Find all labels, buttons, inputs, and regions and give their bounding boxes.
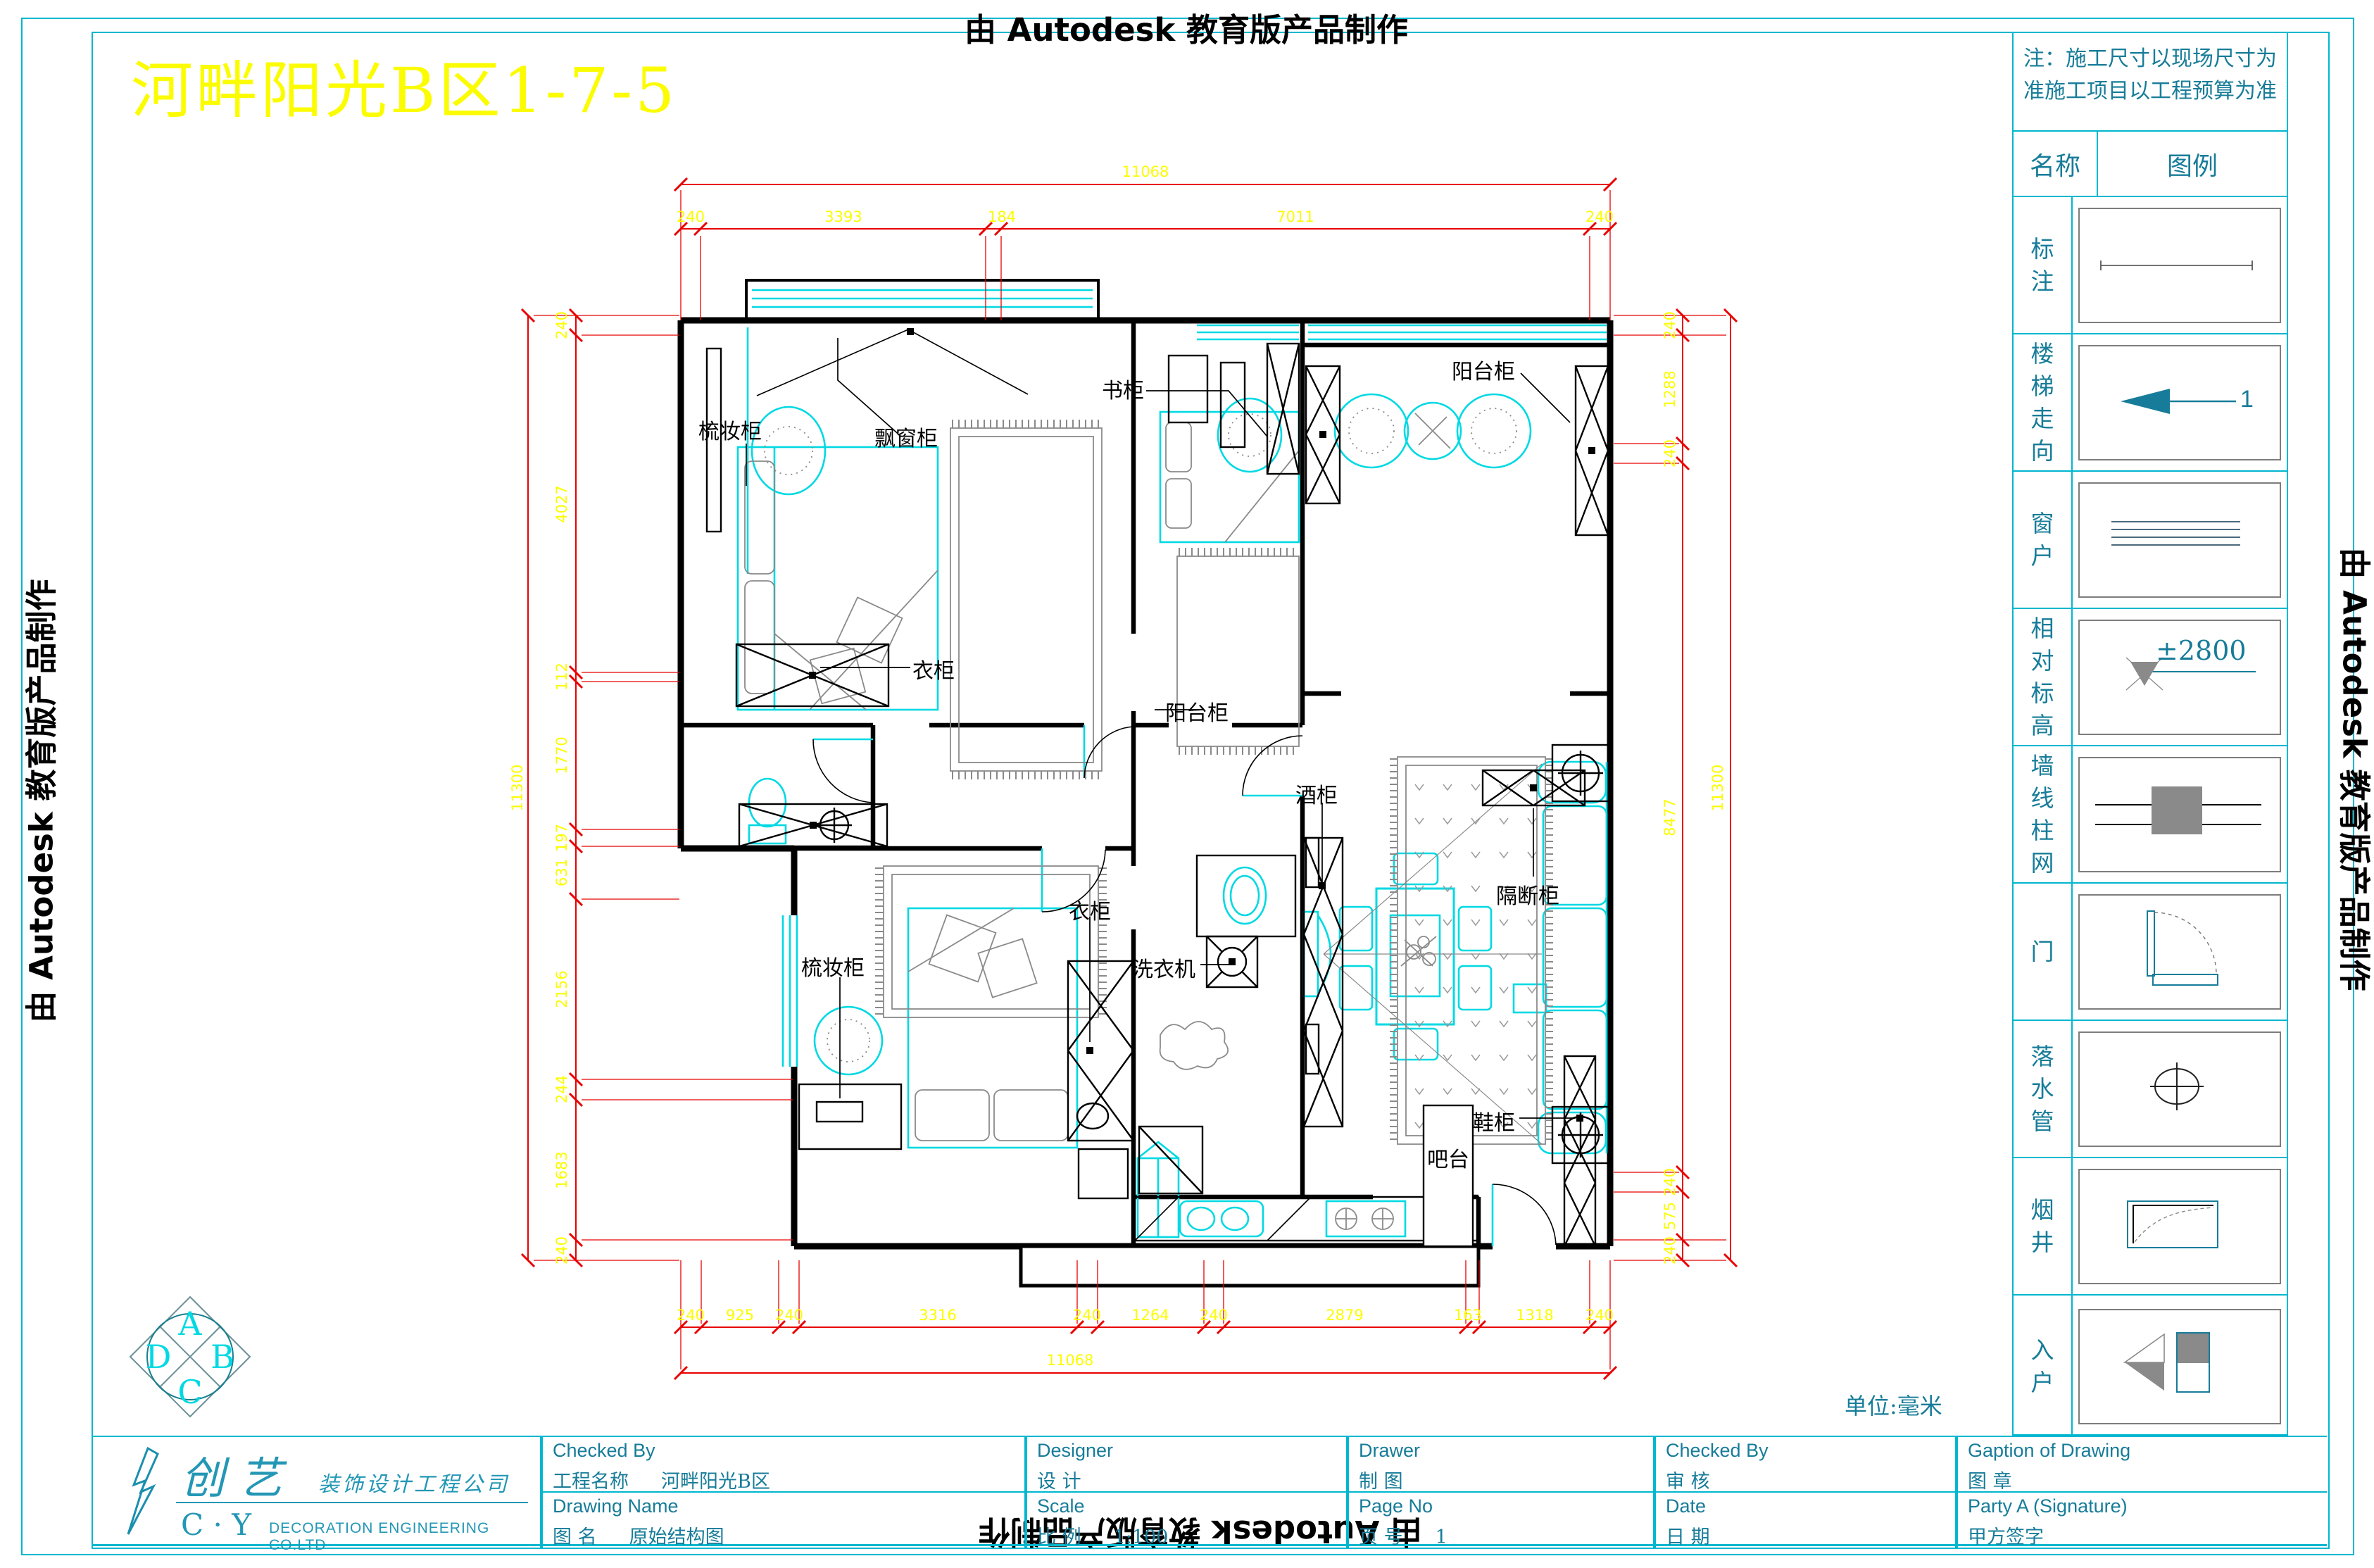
svg-text:D: D	[146, 1338, 172, 1376]
cell-caption: Gaption of Drawing 图 章	[1957, 1437, 2325, 1491]
cell-project-name: Checked By 工程名称河畔阳光B区	[541, 1437, 1023, 1491]
cad-sheet: 由 Autodesk 教育版产品制作 由 Autodesk 教育版产品制作 由 …	[0, 0, 2374, 1568]
stair-arrow-symbol: 1	[2078, 345, 2281, 460]
dim-left-8: 1683	[553, 1139, 570, 1202]
dim-left-1: 4027	[553, 472, 570, 536]
label-bar-counter: 吧台	[1427, 1142, 1469, 1173]
label-wardrobe-2: 衣柜	[1069, 894, 1111, 925]
legend-row-door: 门	[2014, 884, 2287, 1021]
dim-bot-10: 240	[1568, 1307, 1631, 1324]
drain-pipe-symbol	[2078, 1031, 2281, 1147]
label-dresser-2: 梳妆柜	[801, 951, 865, 981]
legend-row-drain-pipe: 落水管	[2014, 1021, 2287, 1158]
dimension-lines	[522, 178, 1737, 1379]
label-balcony-cab-2: 阳台柜	[1165, 696, 1229, 727]
cell-scale: Scale 比 例1:100	[1026, 1493, 1345, 1548]
svg-text:C: C	[177, 1373, 202, 1411]
window-symbol	[2078, 482, 2281, 598]
dimension-symbol	[2078, 208, 2281, 323]
dim-bot-6: 240	[1182, 1307, 1245, 1324]
dim-top-4: 240	[1568, 208, 1631, 225]
dim-top-2: 184	[970, 208, 1034, 225]
dim-right-2: 240	[1662, 422, 1678, 485]
dim-bot-7: 2879	[1313, 1307, 1376, 1324]
legend-header: 名称 图例	[2014, 132, 2287, 197]
stair-number: 1	[2240, 386, 2254, 413]
label-partition-cabinet: 隔断柜	[1496, 879, 1559, 910]
company-underline	[176, 1502, 528, 1503]
label-washing-machine: 洗衣机	[1132, 952, 1195, 983]
lightning-bolt-icon	[121, 1445, 170, 1537]
dim-right-total: 11300	[1709, 756, 1726, 820]
cell-designer: Designer 设 计	[1026, 1437, 1345, 1491]
label-wardrobe-1: 衣柜	[912, 653, 955, 684]
entry-symbol	[2078, 1309, 2281, 1424]
label-dresser-1: 梳妆柜	[698, 414, 762, 445]
company-en-abbr: C · Y	[181, 1507, 251, 1542]
company-en-name: DECORATION ENGINEERING CO.LTD	[269, 1520, 540, 1554]
dim-right-0: 240	[1662, 294, 1678, 357]
label-shoe-cabinet: 鞋柜	[1473, 1105, 1515, 1136]
legend-row-flue: 烟井	[2014, 1158, 2287, 1296]
dim-left-9: 240	[553, 1219, 570, 1282]
cell-drawing-name: Drawing Name 图 名原始结构图	[541, 1493, 1023, 1548]
legend-row-wall-grid: 墙线柱网	[2014, 746, 2287, 884]
dim-left-total: 11300	[509, 756, 526, 820]
cell-drawer: Drawer 制 图	[1348, 1437, 1652, 1491]
dim-bottom-total: 11068	[1038, 1352, 1102, 1369]
dim-top-3: 7011	[1264, 208, 1327, 225]
label-baywindow: 飘窗柜	[874, 421, 938, 452]
door-symbol	[2078, 894, 2281, 1010]
level-symbol: ±2800	[2078, 620, 2281, 735]
dim-right-3: 8477	[1662, 786, 1678, 849]
legend-row-relative-level: 相对标高 ±2800	[2014, 609, 2287, 746]
legend-sidebar: 注：施工尺寸以现场尺寸为 准施工项目以工程预算为准 名称 图例 标注 楼梯走向 …	[2012, 32, 2288, 1436]
legend-row-dimension: 标注	[2014, 197, 2287, 334]
legend-header-name: 名称	[2030, 146, 2080, 182]
dim-bot-8: 163	[1436, 1307, 1500, 1324]
dim-left-6: 2156	[553, 958, 570, 1021]
svg-text:B: B	[211, 1338, 234, 1376]
label-wine-cabinet: 酒柜	[1295, 778, 1338, 809]
flue-symbol	[2078, 1169, 2281, 1284]
construction-note: 注：施工尺寸以现场尺寸为 准施工项目以工程预算为准	[2014, 33, 2287, 132]
unit-note: 单位:毫米	[1845, 1388, 1942, 1421]
dim-top-total: 11068	[1114, 163, 1177, 180]
cell-party-a: Party A (Signature) 甲方签字	[1957, 1493, 2325, 1548]
legend-row-window: 窗户	[2014, 472, 2287, 609]
dim-right-6: 240	[1662, 1219, 1678, 1282]
wall-column-symbol	[2078, 757, 2281, 872]
dim-left-5: 631	[553, 841, 570, 904]
legend-header-symbol: 图例	[2167, 146, 2218, 182]
scale-value: 1:100	[1114, 1526, 1169, 1548]
dim-left-7: 244	[553, 1058, 570, 1121]
project-name-value: 河畔阳光B区	[661, 1471, 770, 1491]
legend-row-stair-direction: 楼梯走向 1	[2014, 334, 2287, 472]
level-value: ±2800	[2156, 635, 2247, 666]
cell-date: Date 日 期	[1654, 1493, 1954, 1548]
dim-left-0: 240	[553, 294, 570, 357]
legend-row-entry: 入户	[2014, 1296, 2287, 1437]
company-cn-big: 创 艺	[181, 1443, 282, 1506]
note-line1: 注：施工尺寸以现场尺寸为	[2023, 46, 2277, 71]
label-balcony-cab-1: 阳台柜	[1452, 354, 1515, 385]
dim-top-1: 3393	[812, 208, 875, 225]
dim-bot-5: 1264	[1119, 1307, 1182, 1324]
dim-bot-3: 3316	[906, 1307, 969, 1324]
dim-left-3: 1770	[553, 724, 570, 787]
dim-right-1: 1288	[1662, 358, 1678, 421]
page-no-value: 1	[1436, 1526, 1447, 1548]
svg-text:A: A	[177, 1305, 202, 1343]
dim-bot-2: 240	[758, 1307, 821, 1324]
dim-top-0: 240	[659, 208, 722, 225]
label-bookcase: 书柜	[1102, 373, 1144, 404]
dim-left-2: 112	[553, 645, 570, 708]
cell-checked-by: Checked By 审 核	[1654, 1437, 1954, 1491]
note-line2: 准施工项目以工程预算为准	[2023, 79, 2277, 104]
drawing-name-value: 原始结构图	[629, 1526, 724, 1548]
dim-bot-9: 1318	[1503, 1307, 1566, 1324]
diamond-logo: A B C D	[130, 1297, 250, 1417]
company-logo: 创 艺 装饰设计工程公司 C · Y DECORATION ENGINEERIN…	[93, 1437, 540, 1545]
company-cn-small: 装饰设计工程公司	[318, 1467, 510, 1498]
cell-page-no: Page No 页 号1	[1348, 1493, 1652, 1548]
dim-bot-4: 240	[1055, 1307, 1119, 1324]
